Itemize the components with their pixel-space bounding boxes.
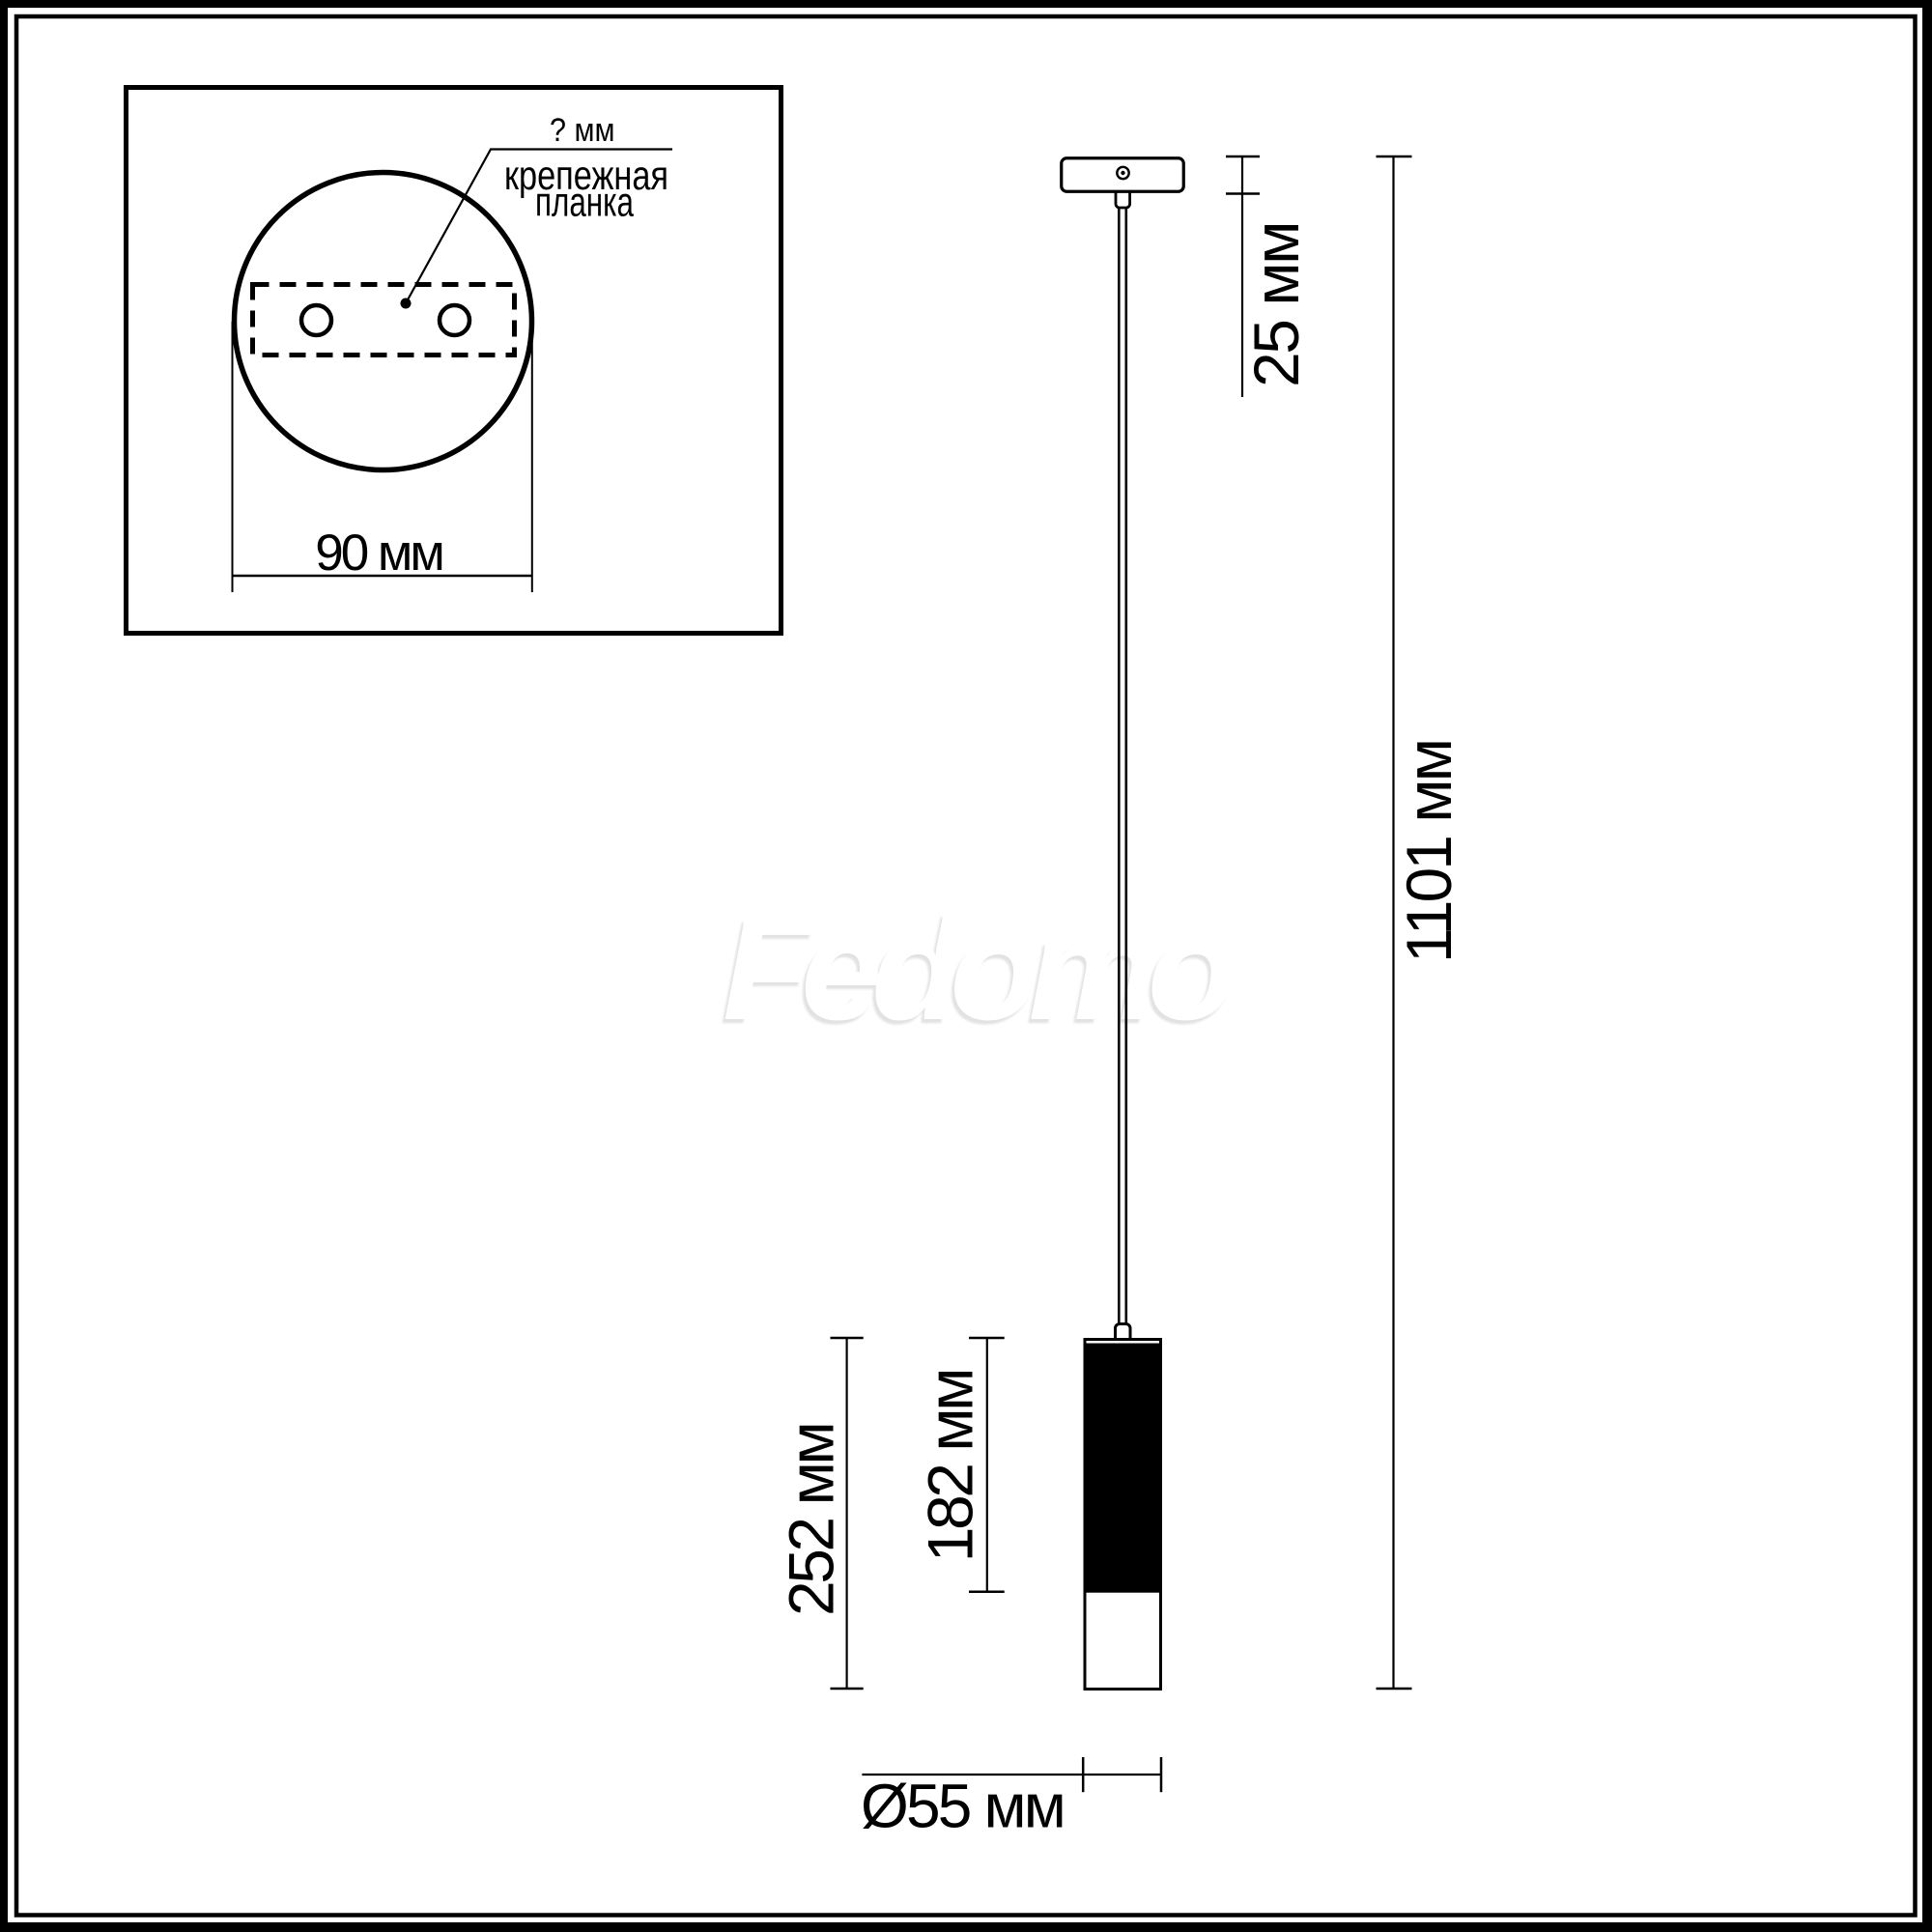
svg-text:Ø55 мм: Ø55 мм	[861, 1772, 1064, 1841]
svg-text:25 мм: 25 мм	[1240, 223, 1312, 387]
svg-text:Fedomo: Fedomo	[723, 887, 1233, 1050]
svg-text:252 мм: 252 мм	[775, 1425, 846, 1616]
svg-text:1101 мм: 1101 мм	[1393, 741, 1464, 963]
svg-text:90 мм: 90 мм	[315, 525, 442, 582]
svg-text:планка: планка	[535, 180, 634, 226]
svg-text:? мм: ? мм	[550, 112, 615, 149]
svg-text:182 мм: 182 мм	[915, 1371, 986, 1562]
